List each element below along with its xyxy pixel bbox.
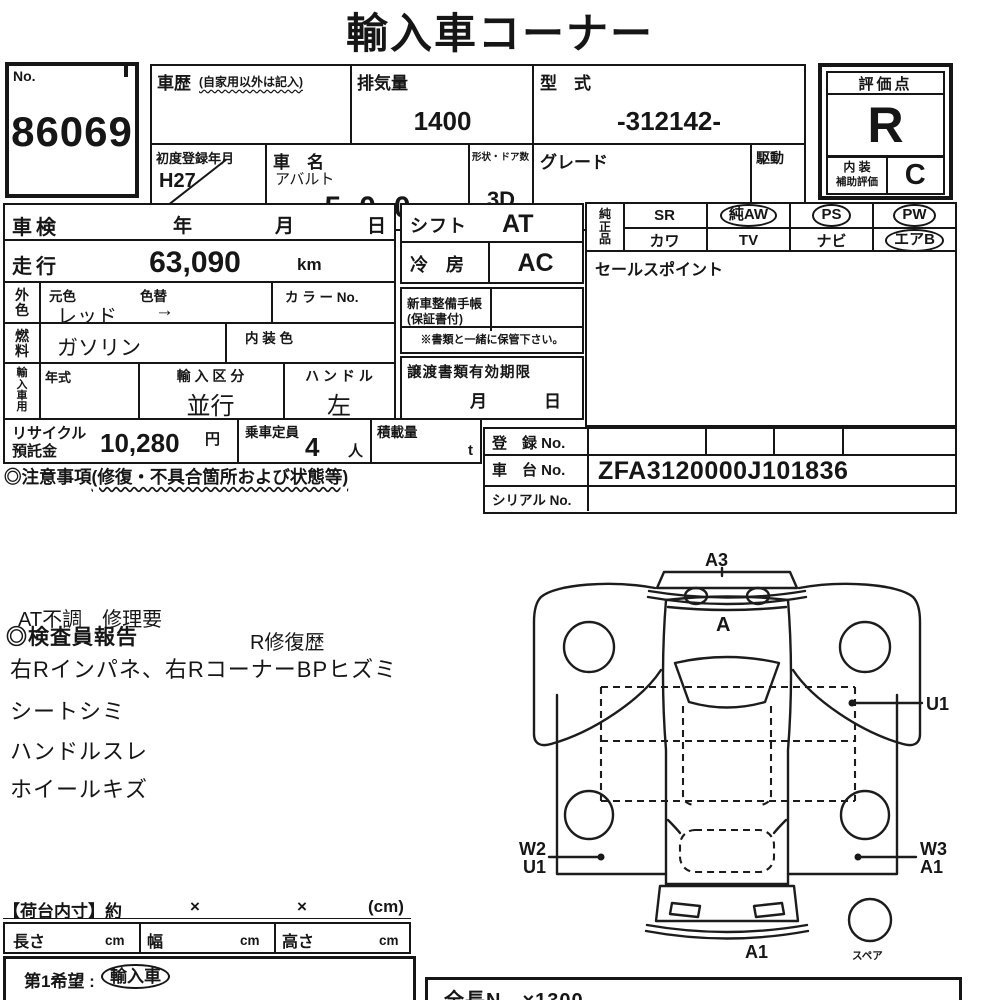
option-label: ナビ — [816, 230, 846, 251]
width-label: 幅 — [147, 928, 163, 952]
option-tv: TV — [706, 227, 789, 252]
import-row: 輸入車用 年式 輸 入 区 分 並行 ハ ン ド ル 左 — [3, 362, 396, 420]
cargo-x2: × — [297, 897, 307, 917]
damage-label-u1-right: U1 — [926, 694, 949, 714]
grade-label: グレード — [540, 148, 608, 173]
tail-light-right — [754, 903, 784, 917]
load-unit: t — [468, 442, 473, 459]
drive-label: 駆動 — [756, 148, 784, 168]
damage-label-a: A — [716, 614, 730, 636]
capacity-unit: 人 — [348, 440, 363, 461]
spare-tire — [849, 899, 891, 941]
first-choice-value: 輸入車 — [101, 964, 170, 989]
tail-light-left — [670, 903, 700, 917]
caution-heading: ◎注意事項(修復・不具合箇所および状態等) — [4, 464, 348, 489]
divider — [274, 924, 276, 952]
wheel-front-left — [564, 622, 614, 672]
first-choice-prefix: 第1希望 : — [24, 967, 95, 992]
length-unit: cm — [105, 933, 125, 948]
handle-label: ハ ン ド ル — [283, 366, 395, 386]
interior-label-line2: 補助評価 — [828, 175, 886, 189]
option-navi: ナビ — [789, 227, 872, 252]
fuel-label: 燃料 — [14, 329, 30, 358]
option-label: カワ — [649, 230, 679, 251]
rating-box: 評価点 R 内 装 補助評価 C — [818, 63, 953, 200]
transfer-docs-box: 譲渡書類有効期限 月 日 — [400, 356, 584, 420]
circled-option-label: 純AW — [720, 204, 777, 227]
color-change-arrow: → — [155, 300, 174, 322]
history-note: (自家用以外は記入) — [199, 73, 303, 90]
lot-number-label: No. — [13, 68, 36, 84]
cargo-x1: × — [190, 897, 200, 917]
fuel-row: 燃料 ガソリン 内 装 色 — [3, 322, 396, 365]
wheel-rear-left — [565, 791, 613, 839]
genuine-parts-side-label: 純正品 — [587, 204, 625, 250]
mileage-label: 走行 — [12, 250, 60, 279]
transfer-docs-label: 譲渡書類有効期限 — [407, 361, 531, 382]
divider — [842, 429, 844, 454]
divider — [370, 420, 372, 462]
fuel-value: ガソリン — [57, 332, 141, 362]
inspector-report-heading: ◎検査員報告 — [6, 621, 138, 651]
registration-table: 登 録 No. 車 台 No. ZFA3120000J101836 シリアル N… — [483, 427, 957, 514]
lot-number-value: 86069 — [9, 108, 135, 156]
circled-option-label: エアB — [885, 229, 944, 252]
cargo-dims-table: 長さ cm 幅 cm 高さ cm — [3, 922, 411, 954]
caution-prefix: ◎注意事項 — [4, 467, 92, 487]
ac-value: AC — [488, 249, 583, 278]
interior-rating-score: C — [886, 155, 946, 195]
interior-rating-label: 内 装 補助評価 — [826, 155, 888, 195]
service-book-box: 新車整備手帳 (保証書付) ※書類と一緒に保管下さい。 — [400, 287, 584, 354]
height-label: 高さ — [282, 928, 314, 952]
transfer-month: 月 — [470, 387, 487, 412]
sales-point-box: セールスポイント — [585, 250, 957, 427]
capacity-label: 乗車定員 — [245, 421, 299, 441]
dimensions-footer-box: 全長N ×1300 — [425, 977, 962, 1000]
damage-label-w2: W2 — [519, 839, 546, 859]
color-no-label: カ ラ ー No. — [285, 286, 359, 306]
report-line: 右Rインパネ、右RコーナーBPヒズミ — [10, 652, 397, 684]
option-label: TV — [739, 232, 758, 249]
exterior-color-row: 外色 元色 色替 レッド → カ ラ ー No. — [3, 281, 396, 325]
damage-label-a3: A3 — [705, 550, 728, 570]
caution-note: (修復・不具合箇所および状態等) — [92, 467, 349, 487]
shaken-label: 車検 — [12, 211, 60, 240]
genuine-parts-label: 純正品 — [598, 208, 611, 245]
mileage-unit: km — [297, 255, 322, 275]
option-sr: SR — [623, 204, 706, 227]
windshield — [675, 657, 779, 708]
shift-value: AT — [502, 210, 533, 239]
inspection-row: 車検 年 月 日 — [3, 203, 396, 242]
transfer-day: 日 — [544, 387, 561, 412]
lot-number-box: No. 86069 — [5, 62, 139, 198]
corner-tick — [124, 66, 128, 77]
circled-option-label: PW — [893, 204, 935, 227]
rating-score: R — [826, 93, 945, 158]
exterior-color-label: 外色 — [14, 288, 30, 317]
shaken-year: 年 — [173, 211, 192, 238]
history-cell: 車歴 (自家用以外は記入) — [150, 64, 353, 145]
wheel-rear-right — [841, 791, 889, 839]
serial-no-row: シリアル No. — [485, 487, 955, 511]
wheel-front-right — [840, 622, 890, 672]
mileage-row: 走行 63,090 km — [3, 239, 396, 284]
recycle-row: リサイクル 預託金 10,280 円 乗車定員 4 人 積載量 t — [3, 418, 482, 464]
model-code-value: -312142- — [534, 106, 804, 137]
damage-label-a1-right: A1 — [920, 857, 943, 877]
car-maker: アバルト — [275, 168, 334, 189]
right-door — [793, 584, 920, 745]
ac-label: 冷 房 — [410, 251, 464, 277]
option-kawa: カワ — [623, 227, 706, 252]
shaken-month: 月 — [275, 211, 294, 238]
model-code-cell: 型 式 -312142- — [532, 64, 806, 145]
circled-option-label: PS — [812, 204, 850, 227]
divider — [773, 429, 775, 454]
handle-value: 左 — [283, 386, 395, 421]
rating-header: 評価点 — [826, 71, 945, 95]
interior-label-line1: 内 装 — [828, 159, 886, 175]
sales-point-label: セールスポイント — [595, 256, 723, 280]
footer-partial-text: 全長N ×1300 — [444, 984, 584, 1000]
damage-label-a1-rear: A1 — [745, 942, 768, 962]
option-label: SR — [654, 207, 675, 224]
fuel-side-label: 燃料 — [5, 324, 41, 363]
genuine-parts-grid: SR 純AW PS PW カワ TV ナビ エアB — [623, 204, 955, 250]
shaken-day: 日 — [367, 211, 386, 238]
divider — [237, 420, 239, 462]
cargo-unit: (cm) — [368, 897, 404, 917]
repair-history-note: R修復歴 — [250, 626, 324, 655]
report-line: シートシミ — [10, 694, 125, 726]
length-label: 長さ — [13, 928, 45, 952]
history-label: 車歴 — [157, 69, 191, 94]
capacity-value: 4 — [305, 432, 319, 463]
left-door — [534, 584, 661, 745]
first-registration-value: H27 — [159, 170, 196, 193]
option-aw: 純AW — [706, 204, 789, 227]
shift-label: シフト — [410, 212, 467, 238]
import-class-value: 並行 — [138, 386, 283, 421]
option-airbag: エアB — [872, 227, 955, 252]
genuine-parts-table: 純正品 SR 純AW PS PW カワ TV ナビ エアB — [585, 202, 957, 252]
shift-box: シフト AT — [400, 203, 584, 244]
rear-window — [680, 830, 774, 872]
first-registration-label: 初度登録年月 — [156, 148, 234, 167]
model-code-label: 型 式 — [540, 69, 591, 94]
divider — [225, 324, 227, 363]
load-label: 積載量 — [377, 421, 418, 441]
exterior-color-side-label: 外色 — [5, 283, 41, 323]
report-line: ホイールキズ — [10, 772, 148, 804]
damage-label-w3: W3 — [920, 839, 947, 859]
year-model-label: 年式 — [45, 367, 71, 386]
recycle-unit: 円 — [205, 428, 220, 449]
import-class-label: 輸 入 区 分 — [138, 366, 283, 386]
width-unit: cm — [240, 933, 260, 948]
shape-doors-label: 形状・ドア数 — [472, 149, 529, 163]
chassis-no-value: ZFA3120000J101836 — [598, 457, 848, 486]
import-label: 輸入車用 — [16, 368, 28, 414]
chassis-no-label: 車 台 No. — [485, 456, 589, 485]
service-book-label-2: (保証書付) — [407, 310, 463, 327]
service-book-note: ※書類と一緒に保管下さい。 — [402, 326, 582, 352]
page-title: 輸入車コーナー — [290, 0, 710, 61]
divider — [271, 283, 273, 323]
divider — [490, 289, 492, 331]
rule — [3, 918, 411, 919]
recycle-label-2: 預託金 — [12, 440, 57, 461]
damage-label-u1-left: U1 — [523, 857, 546, 877]
auction-sheet: 輸入車コーナー No. 86069 車歴 (自家用以外は記入) 排気量 1400… — [0, 0, 1000, 1000]
height-unit: cm — [379, 933, 399, 948]
serial-no-label: シリアル No. — [485, 487, 589, 511]
registration-no-label: 登 録 No. — [485, 429, 589, 454]
displacement-label: 排気量 — [357, 69, 408, 94]
interior-color-label: 内 装 色 — [245, 327, 293, 347]
report-line: ハンドルスレ — [10, 734, 148, 766]
recycle-value: 10,280 — [100, 428, 180, 459]
spare-label: スペア — [852, 950, 883, 962]
ac-box: 冷 房 AC — [400, 241, 584, 284]
displacement-value: 1400 — [352, 106, 533, 137]
divider — [139, 924, 141, 952]
first-choice-box: 第1希望 : 輸入車 — [3, 956, 416, 1000]
chassis-no-row: 車 台 No. ZFA3120000J101836 — [485, 456, 955, 487]
option-ps: PS — [789, 204, 872, 227]
registration-no-row: 登 録 No. — [485, 429, 955, 456]
displacement-cell: 排気量 1400 — [350, 64, 535, 145]
mileage-value: 63,090 — [105, 246, 285, 280]
front-bumper — [657, 572, 797, 588]
divider — [705, 429, 707, 454]
import-side-label: 輸入車用 — [5, 364, 41, 418]
car-damage-diagram: A3 A U1 W2 U1 W3 A1 A1 スペア — [498, 546, 970, 970]
option-pw: PW — [872, 204, 955, 227]
